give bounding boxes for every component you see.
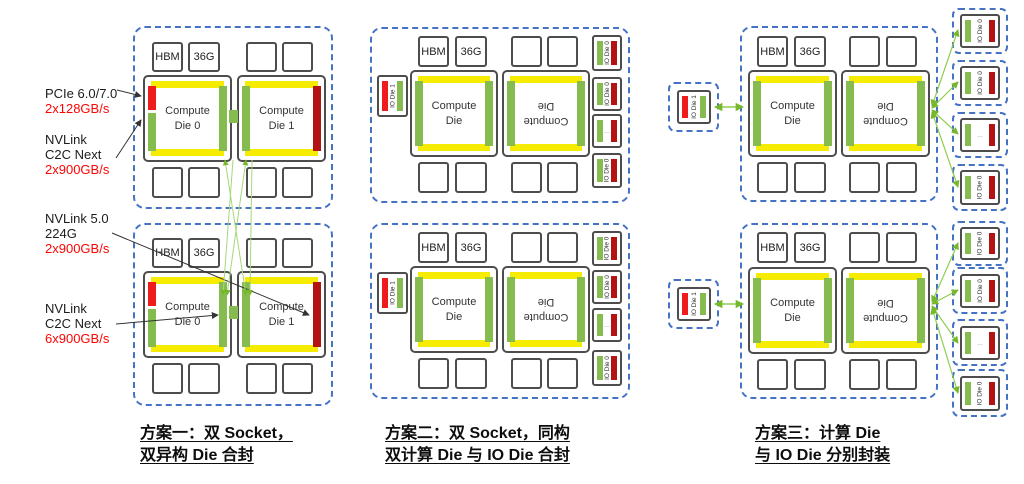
legend-nvlink-c2c-bottom: NVLink C2C Next 6x900GB/s [45, 301, 109, 346]
io-tile [886, 162, 917, 193]
nvlink-bar [989, 280, 995, 302]
io-die-0-box: IO Die 0 [960, 66, 1000, 100]
compute-die: Compute Die [748, 70, 837, 157]
io-die-0-box: IO Die 0 [960, 227, 1000, 260]
hbm-label: HBM [760, 242, 784, 254]
compute-die-label: Compute Die [412, 268, 496, 351]
io-die-0-box: IO Die 0 [960, 14, 1000, 48]
caption-scheme1-line1: 方案一：双 Socket， [140, 423, 293, 445]
compute-die-1: Compute Die 1 [237, 75, 326, 162]
nvlink-bar [989, 382, 995, 405]
hbm-tile [246, 42, 277, 72]
hbm-tile [511, 232, 542, 263]
io-tile [547, 162, 578, 193]
legend-pcie-bandwidth: 2x128GB/s [45, 101, 117, 116]
io-die-0-label: IO Die 0 [592, 274, 622, 300]
hbm-capacity-box: 36G [794, 232, 826, 263]
compute-die-label: Compute Die [504, 72, 588, 155]
io-tile [757, 359, 788, 390]
compute-die-label: Compute Die [843, 72, 928, 155]
hbm-label: HBM [155, 51, 179, 63]
legend-nvlink-c2c-bottom-name: NVLink C2C Next [45, 301, 109, 331]
c2c-link-bar [397, 278, 403, 308]
io-tile [188, 167, 220, 198]
io-die-0-label: IO Die 0 [592, 236, 623, 262]
io-tile [418, 162, 449, 193]
compute-die: Compute Die [410, 70, 498, 157]
caption-scheme3: 方案三：计算 Die 与 IO Die 分别封装 [755, 423, 890, 467]
legend-nvlink-c2c-bottom-bandwidth: 6x900GB/s [45, 331, 109, 346]
compute-die-rotated: Compute Die [502, 70, 590, 157]
io-tile [511, 358, 542, 389]
c2c-link-bar [700, 293, 706, 315]
io-die-1-label: IO Die 1 [374, 280, 412, 307]
nvlink-bar [611, 276, 617, 298]
io-tile [455, 358, 487, 389]
hbm-label: HBM [155, 247, 179, 259]
compute-die-0-label: Compute Die 0 [145, 273, 230, 356]
io-tile [188, 363, 220, 394]
io-die-0-box: IO Die 0 [592, 270, 622, 304]
hbm-box: HBM [418, 232, 449, 263]
io-tile [757, 162, 788, 193]
die-to-die-bridge [229, 110, 238, 123]
io-die-0-box: IO Die 0 [960, 170, 1000, 205]
hbm-capacity-box: 36G [455, 36, 487, 67]
hbm-capacity-box: 36G [188, 238, 220, 268]
compute-die-label: Compute Die [504, 268, 588, 351]
compute-die-0-label: Compute Die 0 [145, 77, 230, 160]
caption-scheme2: 方案二：双 Socket，同构 双计算 Die 与 IO Die 合封 [385, 423, 570, 467]
nvlink-bar [611, 237, 617, 260]
nvlink-bar [989, 72, 995, 94]
io-tile [849, 359, 880, 390]
hbm-tile [547, 36, 578, 67]
hbm-tile [282, 42, 313, 72]
io-die-ellipsis-box: ... [592, 114, 622, 148]
caption-scheme2-line1: 方案二：双 Socket，同构 [385, 423, 570, 445]
c2c-link-bar [397, 81, 403, 111]
hbm-tile [886, 232, 917, 263]
nvlink-bar [989, 124, 995, 146]
hbm-label: HBM [421, 242, 445, 254]
io-die-1-box: IO Die 1 [677, 90, 711, 124]
io-die-0-label: IO Die 0 [592, 158, 623, 184]
hbm-capacity-label: 36G [800, 46, 821, 58]
chip-packaging-schemes-diagram: PCIe 6.0/7.0 2x128GB/s NVLink C2C Next 2… [0, 0, 1024, 484]
hbm-tile [511, 36, 542, 67]
io-tile [246, 363, 277, 394]
hbm-box: HBM [152, 42, 183, 72]
io-die-0-label: IO Die 0 [591, 40, 623, 66]
nvlink-bar [611, 356, 617, 380]
nvlink-bar [611, 120, 617, 142]
hbm-tile [849, 232, 880, 263]
nvlink-bar [611, 159, 617, 182]
caption-scheme3-line1: 方案三：计算 Die [755, 423, 890, 445]
compute-die-label: Compute Die [843, 269, 928, 352]
hbm-capacity-label: 36G [194, 247, 215, 259]
compute-die-0: Compute Die 0 [143, 271, 232, 358]
io-die-ellipsis-box: ... [960, 326, 1000, 360]
io-tile [511, 162, 542, 193]
io-tile [849, 162, 880, 193]
legend-nvlink5-bandwidth: 2x900GB/s [45, 241, 109, 256]
io-die-0-label: IO Die 0 [592, 81, 622, 107]
nvlink-bar [611, 83, 617, 105]
io-die-1-label: IO Die 1 [374, 83, 412, 110]
io-die-0-box: IO Die 0 [592, 35, 622, 71]
io-tile [794, 359, 826, 390]
compute-die-1-label: Compute Die 1 [239, 273, 324, 356]
io-tile [547, 358, 578, 389]
c2c-link-bar [700, 96, 706, 118]
io-die-0-label: IO Die 0 [591, 355, 623, 381]
hbm-box: HBM [757, 232, 788, 263]
io-tile [418, 358, 449, 389]
compute-die-label: Compute Die [412, 72, 496, 155]
io-tile [152, 363, 183, 394]
nvlink-bar [989, 332, 995, 354]
hbm-capacity-label: 36G [461, 242, 482, 254]
hbm-tile [246, 238, 277, 268]
legend-nvlink5-name: NVLink 5.0 224G [45, 211, 109, 241]
nvlink-bar [989, 176, 995, 199]
hbm-tile [547, 232, 578, 263]
hbm-capacity-box: 36G [455, 232, 487, 263]
hbm-label: HBM [760, 46, 784, 58]
io-die-0-box: IO Die 0 [592, 77, 622, 111]
compute-die-rotated: Compute Die [502, 266, 590, 353]
hbm-capacity-box: 36G [188, 42, 220, 72]
io-tile [886, 359, 917, 390]
io-tile [246, 167, 277, 198]
nvlink-bar [611, 314, 617, 336]
hbm-tile [849, 36, 880, 67]
hbm-capacity-label: 36G [800, 242, 821, 254]
legend-nvlink-c2c-top: NVLink C2C Next 2x900GB/s [45, 132, 109, 177]
io-die-ellipsis-box: ... [592, 308, 622, 342]
io-die-ellipsis-box: ... [960, 118, 1000, 152]
io-die-0-box: IO Die 0 [592, 231, 622, 266]
hbm-capacity-label: 36G [194, 51, 215, 63]
legend-nvlink-c2c-top-name: NVLink C2C Next [45, 132, 109, 162]
hbm-tile [886, 36, 917, 67]
io-tile [282, 167, 313, 198]
compute-die-0: Compute Die 0 [143, 75, 232, 162]
nvlink-bar [989, 20, 995, 42]
caption-scheme3-line2: 与 IO Die 分别封装 [755, 445, 890, 467]
legend-nvlink-c2c-top-bandwidth: 2x900GB/s [45, 162, 109, 177]
compute-die-label: Compute Die [750, 72, 835, 155]
hbm-box: HBM [152, 238, 183, 268]
legend-nvlink5: NVLink 5.0 224G 2x900GB/s [45, 211, 109, 256]
io-die-1-box: IO Die 1 [377, 75, 408, 117]
die-to-die-bridge [229, 306, 238, 319]
hbm-box: HBM [757, 36, 788, 67]
io-die-1-box: IO Die 1 [677, 287, 711, 321]
nvlink-bar [989, 233, 995, 254]
compute-die: Compute Die [748, 267, 837, 354]
caption-scheme1-line2: 双异构 Die 合封 [140, 445, 293, 467]
io-die-0-box: IO Die 0 [960, 376, 1000, 411]
compute-die: Compute Die [410, 266, 498, 353]
compute-die-rotated: Compute Die [841, 267, 930, 354]
hbm-tile [282, 238, 313, 268]
legend-pcie: PCIe 6.0/7.0 2x128GB/s [45, 86, 117, 116]
io-die-0-box: IO Die 0 [592, 153, 622, 188]
hbm-capacity-label: 36G [461, 46, 482, 58]
io-tile [282, 363, 313, 394]
hbm-label: HBM [421, 46, 445, 58]
io-die-0-box: IO Die 0 [592, 350, 622, 386]
io-tile [794, 162, 826, 193]
io-die1-link-arrows [715, 107, 743, 304]
hbm-capacity-box: 36G [794, 36, 826, 67]
io-tile [152, 167, 183, 198]
caption-scheme2-line2: 双计算 Die 与 IO Die 合封 [385, 445, 570, 467]
io-tile [455, 162, 487, 193]
legend-pcie-name: PCIe 6.0/7.0 [45, 86, 117, 101]
io-die-1-box: IO Die 1 [377, 272, 408, 314]
compute-die-1: Compute Die 1 [237, 271, 326, 358]
caption-scheme1: 方案一：双 Socket， 双异构 Die 合封 [140, 423, 293, 467]
compute-die-label: Compute Die [750, 269, 835, 352]
nvlink-bar [611, 41, 617, 65]
io-die-0-box: IO Die 0 [960, 274, 1000, 308]
compute-die-rotated: Compute Die [841, 70, 930, 157]
compute-die-1-label: Compute Die 1 [239, 77, 324, 160]
hbm-box: HBM [418, 36, 449, 67]
